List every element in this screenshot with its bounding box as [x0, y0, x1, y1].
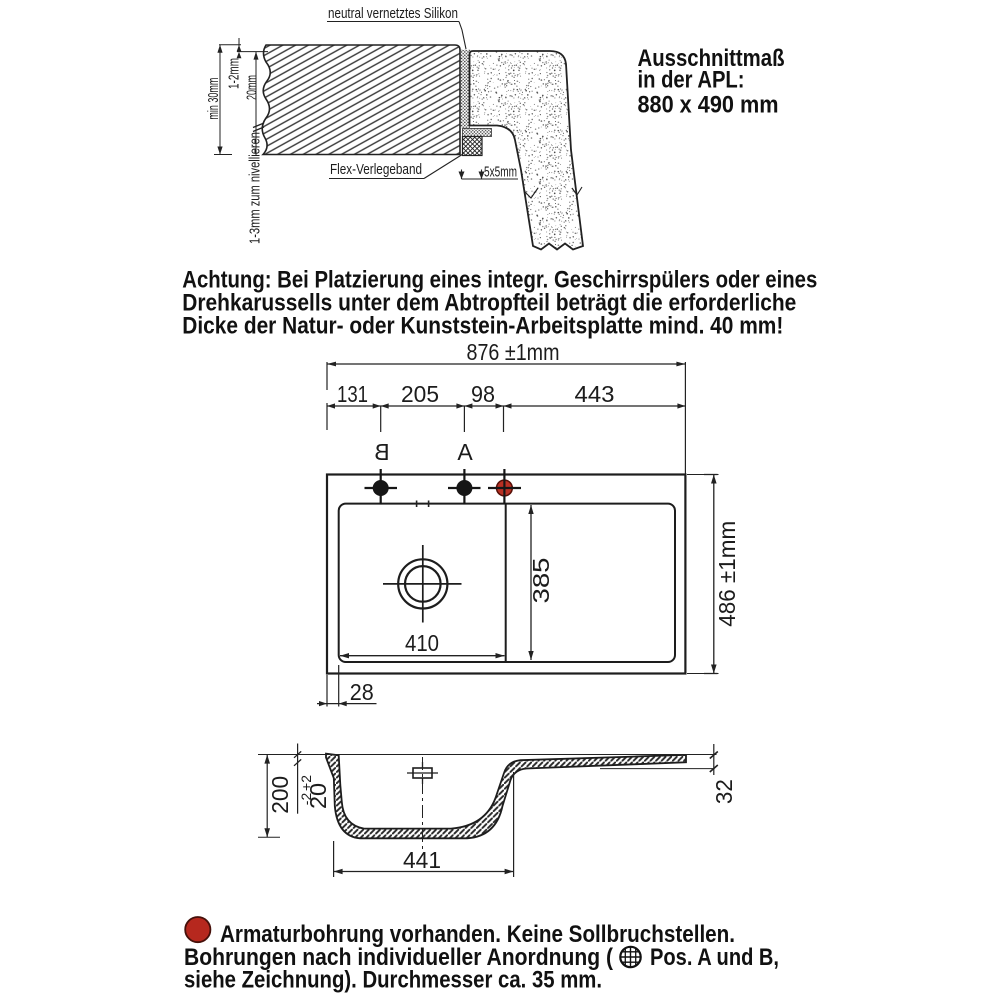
svg-text:5x5mm: 5x5mm: [484, 164, 517, 181]
svg-text:876 ±1mm: 876 ±1mm: [467, 339, 560, 365]
svg-text:1-3mm zum nivellieren: 1-3mm zum nivellieren: [247, 132, 264, 244]
svg-text:+2: +2: [298, 775, 314, 791]
svg-text:B: B: [374, 439, 389, 465]
svg-text:in der APL:: in der APL:: [638, 67, 745, 94]
svg-text:20mm: 20mm: [244, 75, 261, 100]
svg-text:410: 410: [405, 630, 439, 656]
svg-text:98: 98: [471, 381, 495, 407]
svg-text:880 x 490 mm: 880 x 490 mm: [638, 92, 779, 119]
svg-text:28: 28: [350, 679, 374, 705]
svg-text:siehe Zeichnung). Durchmesser: siehe Zeichnung). Durchmesser ca. 35 mm.: [184, 967, 602, 994]
svg-text:Dicke der Natur- oder Kunstste: Dicke der Natur- oder Kunststein-Arbeits…: [182, 313, 783, 340]
svg-text:385: 385: [528, 558, 554, 604]
svg-text:Pos. A und B,: Pos. A und B,: [650, 944, 779, 971]
svg-text:Flex-Verlegeband: Flex-Verlegeband: [330, 161, 422, 178]
svg-text:200: 200: [267, 776, 293, 814]
svg-text:min 30mm: min 30mm: [205, 78, 222, 120]
svg-text:-2: -2: [298, 793, 314, 806]
svg-text:1-2mm: 1-2mm: [226, 58, 243, 89]
svg-text:32: 32: [711, 779, 737, 804]
svg-text:neutral vernetztes Silikon: neutral vernetztes Silikon: [328, 5, 458, 22]
svg-text:486 ±1mm: 486 ±1mm: [714, 521, 740, 627]
svg-text:205: 205: [401, 381, 439, 407]
svg-text:A: A: [457, 439, 473, 465]
svg-text:441: 441: [403, 847, 441, 873]
svg-text:443: 443: [575, 381, 615, 407]
svg-text:131: 131: [337, 381, 368, 407]
